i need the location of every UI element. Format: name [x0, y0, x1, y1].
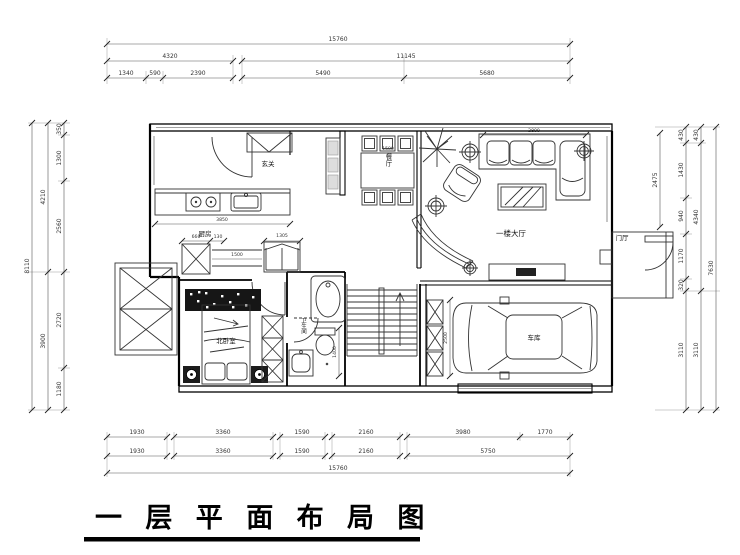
walls	[150, 124, 612, 392]
dim-label: 2500	[443, 332, 449, 344]
ceiling-light-icon	[425, 195, 447, 217]
entry-main-door-arc	[645, 242, 673, 270]
dim-label: 2560	[56, 218, 63, 233]
dim-label: 1500	[231, 252, 243, 258]
stair-treads	[347, 284, 417, 356]
dim-label: 350	[56, 123, 63, 135]
dim-label: 430	[678, 129, 685, 141]
dim-label: 1340	[118, 70, 133, 77]
room-label-kitchen: 厨房	[199, 229, 212, 238]
dim-label: 1170	[678, 248, 685, 263]
title-block: 一 层 平 面 布 局 图	[84, 503, 431, 542]
dim-label: 3360	[215, 448, 230, 455]
dim-label: 1300	[56, 150, 63, 165]
dim-label: 7630	[708, 260, 715, 275]
floor-drain-icon	[326, 363, 328, 365]
nightstand-icon	[251, 366, 268, 383]
entry-partition	[340, 131, 345, 195]
dim-label: 1930	[129, 429, 144, 436]
dim-label: 3900	[40, 333, 47, 348]
dim-label: 4210	[40, 189, 47, 204]
corridor-cabinets	[182, 242, 300, 274]
floor-plan-canvas: 15760 4320 11145 1340 590 2390 5490 5680…	[0, 0, 740, 555]
sofa	[479, 134, 590, 200]
garage-area	[427, 297, 597, 393]
sideboard	[489, 264, 565, 280]
dim-label: 590	[149, 70, 161, 77]
bathroom-area	[289, 276, 345, 376]
dim-label: 130	[214, 234, 223, 240]
room-label-bedroom: 北卧室	[216, 336, 236, 345]
dim-label: 2160	[358, 429, 373, 436]
dim-label: 1590	[294, 429, 309, 436]
garage-car-icon	[453, 297, 597, 379]
dim-label: 5750	[480, 448, 495, 455]
pillow-icon	[205, 363, 225, 380]
dim-label: 15760	[328, 465, 347, 472]
dim-label: 11145	[396, 53, 415, 60]
kitchen-area	[155, 189, 290, 215]
dim-label: 4320	[162, 53, 177, 60]
bottom-wall	[179, 386, 612, 392]
hall-area	[412, 128, 594, 280]
dim-label: 3980	[455, 429, 470, 436]
dim-label: 1305	[276, 233, 288, 239]
room-label-bathroom: 卫生间	[300, 318, 307, 336]
ceiling-light-icon	[459, 141, 481, 163]
dim-label: 3850	[216, 217, 228, 223]
dim-label: 1180	[56, 381, 63, 396]
dim-label: 2390	[190, 70, 205, 77]
window-lines	[154, 136, 607, 222]
dim-label: 2160	[358, 448, 373, 455]
dim-label: 5490	[315, 70, 330, 77]
dim-label: 3110	[693, 342, 700, 357]
nightstand-icon	[183, 366, 200, 383]
dim-label: 1930	[129, 448, 144, 455]
entry-cabinet-icon	[247, 133, 292, 152]
dim-label: 1430	[678, 162, 685, 177]
dim-label: 4340	[693, 209, 700, 224]
dim-label: 1400	[332, 346, 338, 358]
dim-label: 3110	[678, 342, 685, 357]
dim-label: 430	[693, 129, 700, 141]
stairs	[347, 284, 417, 356]
entry-area	[212, 133, 340, 194]
toilet-icon	[315, 328, 335, 355]
dim-label: 1590	[294, 448, 309, 455]
extension-lines	[28, 38, 720, 477]
entry-door-leaf	[645, 236, 673, 242]
room-label-hall: 一楼大厅	[496, 228, 526, 238]
garage-cabinets	[427, 300, 443, 376]
dim-label: 320	[678, 279, 685, 291]
room-label-garage: 车库	[528, 333, 542, 342]
bedroom-area	[183, 282, 285, 384]
dim-label: 940	[678, 210, 685, 222]
dimension-lines	[29, 41, 719, 476]
floor-plan-page: 15760 4320 11145 1340 590 2390 5490 5680…	[0, 0, 740, 555]
plant-icon	[419, 128, 456, 167]
dim-label: 2475	[652, 172, 659, 187]
coffee-table	[498, 184, 546, 210]
dim-label: 8110	[24, 258, 31, 273]
room-label-foyer: 门厅	[616, 233, 630, 242]
dim-label: 5680	[479, 70, 494, 77]
pillow-icon	[227, 363, 247, 380]
room-label-entry: 玄关	[262, 159, 276, 168]
room-label-dining: 餐厅	[384, 152, 392, 167]
porch-ledge	[600, 250, 612, 264]
armchair	[441, 162, 482, 203]
dim-label: 15760	[328, 36, 347, 43]
dim-label: 2720	[56, 312, 63, 327]
title-underline	[84, 537, 420, 542]
entry-door-arc	[212, 137, 252, 177]
page-title: 一 层 平 面 布 局 图	[95, 503, 431, 534]
washbasin-icon	[289, 350, 313, 376]
dim-label: 1770	[537, 429, 552, 436]
dim-label: 3360	[215, 429, 230, 436]
